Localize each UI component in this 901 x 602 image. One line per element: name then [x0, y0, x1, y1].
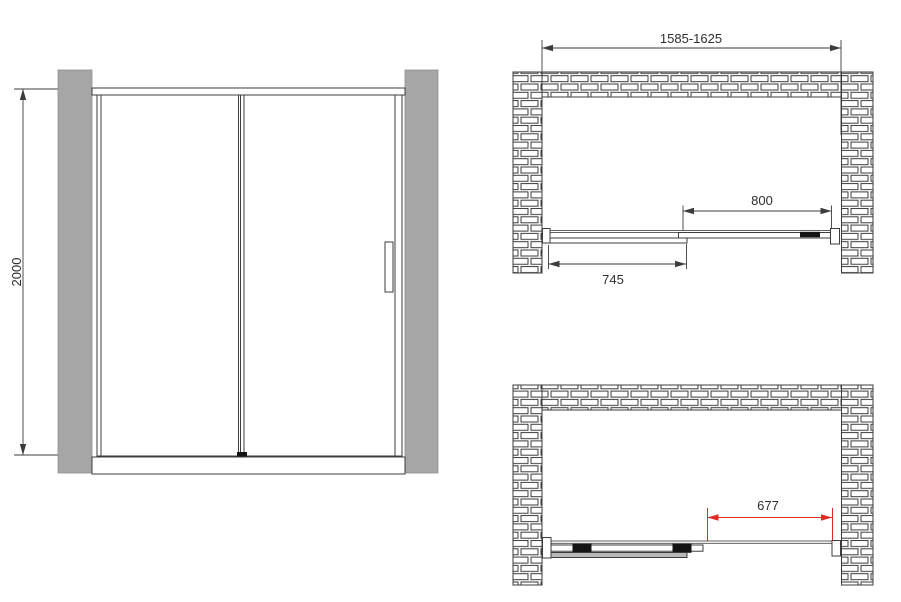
sliding-panel-dim-label: 800	[751, 193, 773, 208]
bottom-guide	[237, 452, 247, 457]
brick-wall-left	[513, 385, 542, 585]
arrowhead-left-icon	[708, 514, 719, 520]
wall-post-left	[58, 70, 92, 473]
plan-view-open: 677	[513, 385, 873, 585]
frame-left-stile	[97, 95, 101, 456]
brick-wall-left	[513, 72, 542, 273]
front-elevation-view: 2000	[9, 70, 438, 474]
fixed-panel-dim-label: 745	[602, 272, 624, 287]
wall-profile-left	[543, 229, 551, 244]
shower-door-technical-drawing: 2000 1585-1625	[0, 0, 901, 602]
brick-wall-right	[842, 385, 874, 585]
arrowhead-down-icon	[20, 444, 26, 455]
arrowhead-left-icon	[683, 208, 694, 214]
track-rail	[550, 541, 833, 543]
fixed-panel	[550, 238, 688, 243]
wall-profile-right	[832, 541, 841, 557]
opening-dim-label: 677	[757, 498, 779, 513]
handle-knob	[800, 232, 820, 237]
wall-post-right	[405, 70, 438, 473]
arrowhead-left-icon	[542, 45, 553, 51]
brick-wall-top-band	[513, 385, 873, 410]
arrowhead-right-icon	[830, 45, 841, 51]
brick-wall-right	[842, 72, 874, 273]
bottom-tray	[92, 457, 405, 474]
height-dimension: 2000	[9, 89, 58, 455]
roller-clamp-right	[673, 544, 692, 553]
fixed-panel	[550, 553, 687, 558]
wall-profile-right	[831, 229, 840, 245]
arrowhead-right-icon	[821, 514, 832, 520]
drawing-canvas: 2000 1585-1625	[0, 0, 901, 602]
sliding-panel-dimension: 800	[683, 193, 832, 236]
brick-wall-top-band	[513, 72, 873, 97]
fixed-panel-dimension: 745	[549, 244, 687, 287]
door-assembly-closed	[543, 229, 840, 245]
sliding-panel-stile	[241, 95, 245, 456]
arrowhead-up-icon	[20, 89, 26, 100]
arrowhead-right-icon	[675, 261, 686, 267]
wall-profile-left	[543, 538, 552, 559]
door-frame	[92, 88, 405, 474]
arrowhead-right-icon	[821, 208, 832, 214]
door-assembly-open	[543, 538, 841, 559]
plan-view-closed: 1585-1625 800 745	[513, 31, 873, 287]
roller-clamp-left	[573, 544, 592, 553]
frame-top-rail	[92, 88, 405, 95]
door-handle	[385, 242, 393, 292]
arrowhead-left-icon	[549, 261, 560, 267]
frame-right-stile	[395, 95, 402, 456]
opening-dimension: 677	[708, 498, 833, 542]
overall-width-dim-label: 1585-1625	[660, 31, 722, 46]
height-dim-label: 2000	[9, 258, 24, 287]
